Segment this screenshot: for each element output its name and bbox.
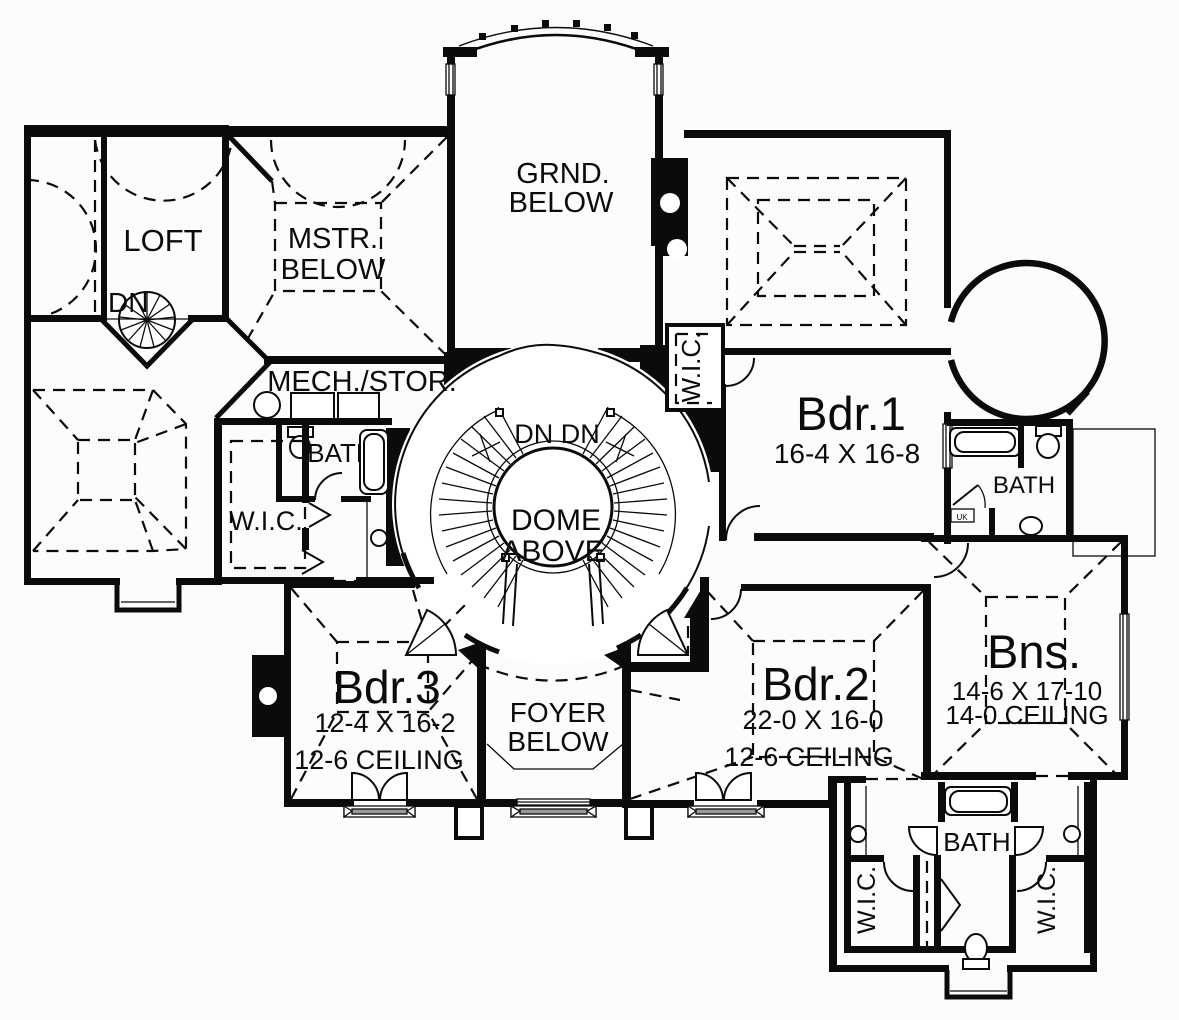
svg-text:DN DN: DN DN [514,419,600,449]
svg-text:12-6 CEILING: 12-6 CEILING [294,745,464,775]
svg-text:LOFT: LOFT [123,223,202,258]
svg-text:BELOW: BELOW [507,726,609,757]
svg-text:12-6 CEILING: 12-6 CEILING [724,742,894,772]
svg-text:DOME: DOME [511,504,601,537]
svg-text:W.I.C.: W.I.C. [229,506,303,536]
svg-text:Bdr.2: Bdr.2 [762,658,869,710]
svg-text:16-4 X 16-8: 16-4 X 16-8 [774,438,920,469]
svg-text:ABOVE: ABOVE [501,535,604,568]
svg-text:22-0 X 16-0: 22-0 X 16-0 [742,705,883,735]
svg-text:DN: DN [108,287,148,318]
svg-text:FOYER: FOYER [510,697,606,728]
svg-text:BELOW: BELOW [281,254,386,286]
svg-text:UK: UK [956,513,968,522]
svg-text:GRND.: GRND. [516,158,609,190]
svg-text:W.I.C.: W.I.C. [676,332,706,403]
svg-text:BATH: BATH [943,827,1010,857]
svg-text:Bdr.3: Bdr.3 [333,661,440,713]
svg-text:BELOW: BELOW [509,187,614,219]
svg-text:Bdr.1: Bdr.1 [796,387,906,440]
svg-text:BATH: BATH [993,472,1055,499]
svg-text:12-4 X 16-2: 12-4 X 16-2 [314,708,455,738]
svg-text:Bns.: Bns. [987,625,1081,678]
svg-text:MSTR.: MSTR. [288,223,378,255]
svg-text:W.I.C.: W.I.C. [853,866,881,934]
svg-text:W.I.C.: W.I.C. [1033,866,1061,934]
svg-text:14-0 CEILING: 14-0 CEILING [945,700,1108,730]
